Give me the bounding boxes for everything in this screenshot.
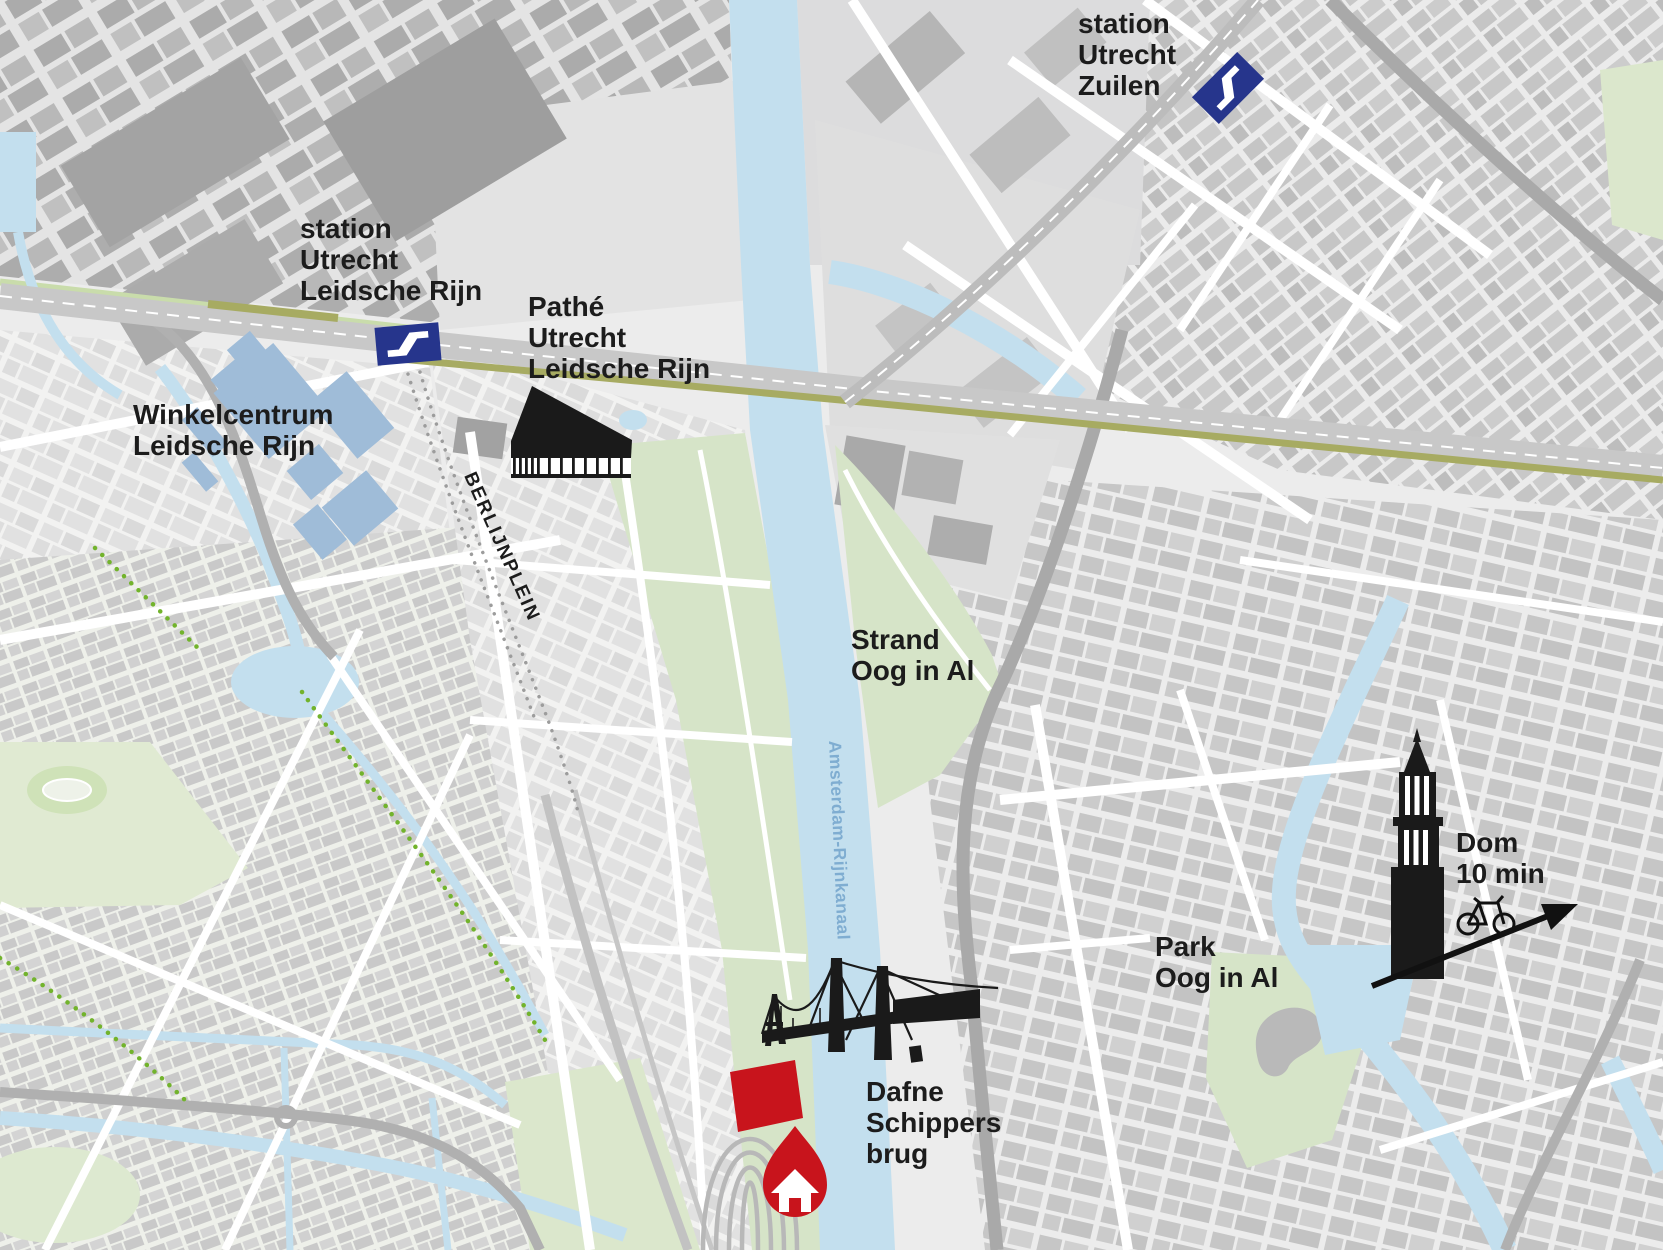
label-line: Leidsche Rijn (133, 430, 333, 461)
label-line: Leidsche Rijn (528, 353, 710, 384)
label-station-utrecht-leidsche-rijn: station Utrecht Leidsche Rijn (300, 213, 482, 306)
label-line: Utrecht (528, 322, 710, 353)
label-park-oog-in-al: Park Oog in Al (1155, 931, 1278, 993)
utrecht-leidsche-rijn-map: station Utrecht Zuilen station Utrecht L… (0, 0, 1663, 1250)
label-line: station (300, 213, 482, 244)
map-canvas (0, 0, 1663, 1250)
label-line: Oog in Al (1155, 962, 1278, 993)
label-pathe-utrecht-leidsche-rijn: Pathé Utrecht Leidsche Rijn (528, 291, 710, 384)
label-line: Utrecht (300, 244, 482, 275)
label-line: Utrecht (1078, 39, 1176, 70)
label-line: Pathé (528, 291, 710, 322)
label-line: Park (1155, 931, 1278, 962)
label-winkelcentrum-leidsche-rijn: Winkelcentrum Leidsche Rijn (133, 399, 333, 461)
label-dom-10-min: Dom 10 min (1456, 827, 1545, 889)
label-line: Zuilen (1078, 70, 1176, 101)
label-line: Schippers (866, 1107, 1001, 1138)
label-station-utrecht-zuilen: station Utrecht Zuilen (1078, 8, 1176, 101)
label-dafne-schippersbrug: Dafne Schippers brug (866, 1076, 1001, 1169)
label-line: Dafne (866, 1076, 1001, 1107)
label-line: Oog in Al (851, 655, 974, 686)
label-line: Strand (851, 624, 974, 655)
ns-logo-leidsche-rijn-icon (374, 322, 441, 365)
label-line: Winkelcentrum (133, 399, 333, 430)
label-line: Dom (1456, 827, 1545, 858)
label-line: Leidsche Rijn (300, 275, 482, 306)
label-line: station (1078, 8, 1176, 39)
label-strand-oog-in-al: Strand Oog in Al (851, 624, 974, 686)
label-line: brug (866, 1138, 1001, 1169)
label-line: 10 min (1456, 858, 1545, 889)
